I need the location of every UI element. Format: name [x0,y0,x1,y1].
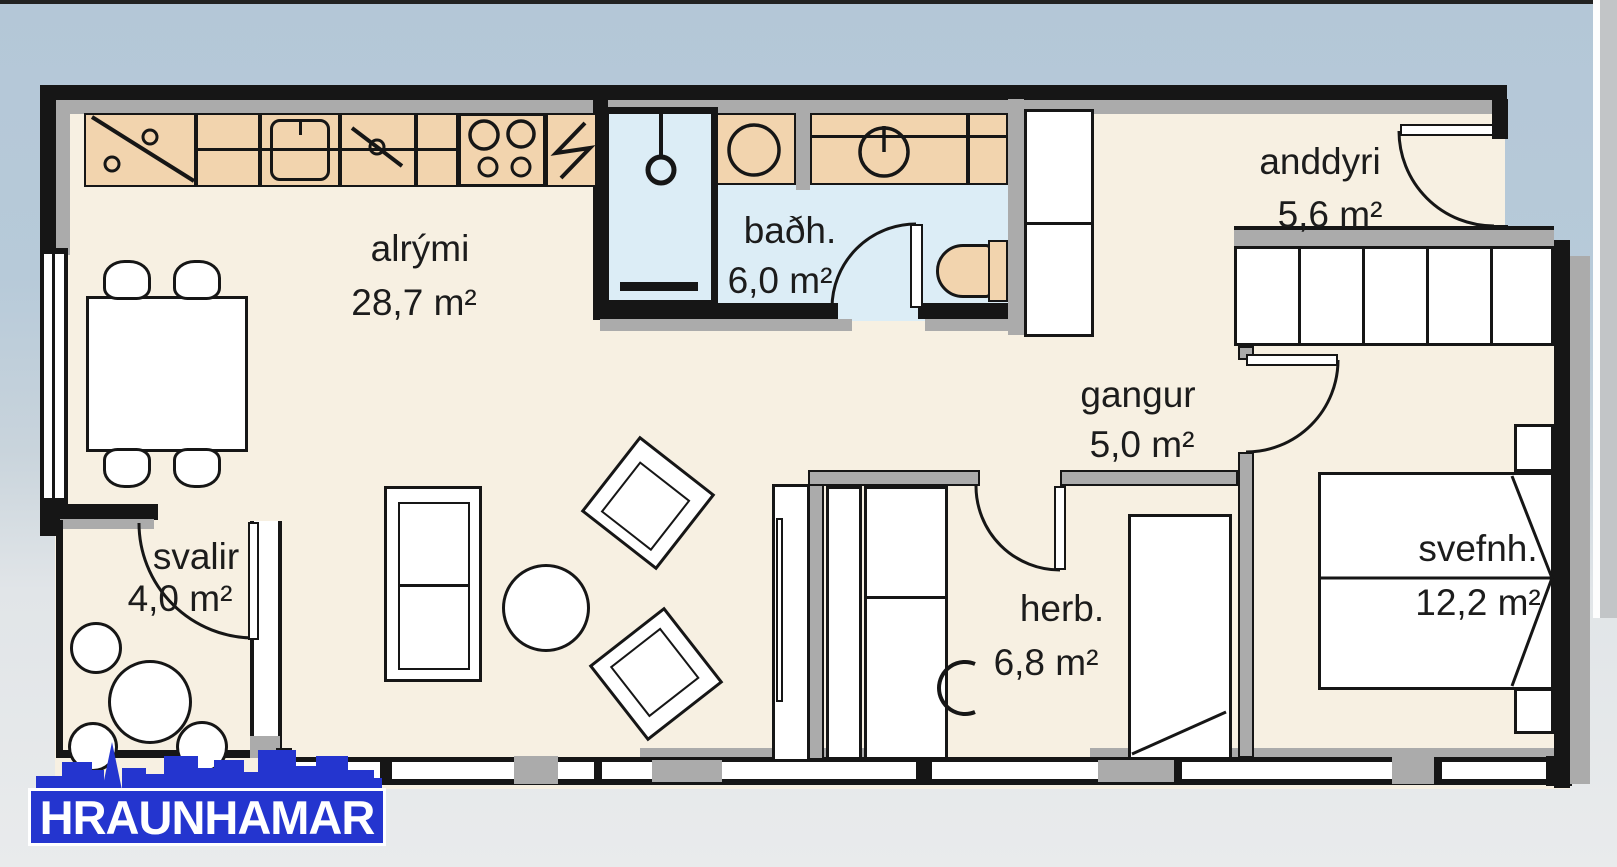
room-label-svalir: svalir [153,538,239,577]
dining-chair [103,260,151,300]
room-area-gangur: 5,0 m² [1090,426,1195,465]
wall-left-upper [40,85,56,255]
anddyri-wardrobe [1234,246,1554,346]
dining-chair [173,260,221,300]
floor-plan: alrými 28,7 m² baðh. 6,0 m² anddyri 5,6 … [0,0,1617,867]
double-bed [1318,472,1554,690]
balcony-chair [70,622,122,674]
wall-herb-top [808,470,980,486]
wardrobe-divider [1362,246,1365,346]
window-mullion [1098,760,1180,782]
herb-wardrobe [826,486,862,760]
window-left-line [52,252,55,502]
window-left-line [64,252,68,502]
window-divider [1174,760,1182,784]
wall-right-outer [1570,256,1590,784]
right-edge-strip-gray [1600,0,1617,618]
wall-bath-bottom-right-outer [925,319,1015,331]
room-label-gangur: gangur [1080,376,1195,415]
wall-bath-bottom-right [918,303,1010,319]
door-leaf-balcony [248,522,259,640]
agency-logo: HRAUNHAMAR [26,740,392,850]
shower-threshold [620,282,698,291]
window-left-cap [40,248,68,254]
logo-skyline [164,756,198,790]
door-leaf-entrance [1400,124,1494,136]
balcony-top-wall [56,504,158,520]
wall-bath-right [1008,99,1024,335]
window-left-line [40,252,44,502]
wall-top [55,85,1507,100]
nightstand [1514,424,1554,472]
balcony-right-rail-line [278,521,282,751]
balcony-table [108,660,192,744]
logo-church-spire [102,742,122,790]
wall-svefnh [1238,452,1254,758]
sofa-cushion-split [400,584,468,587]
room-area-herb: 6,8 m² [994,644,1099,683]
logo-text: HRAUNHAMAR [40,790,375,845]
door-leaf-herb [1054,486,1066,570]
window-mullion [514,756,558,784]
sink-notch [299,119,302,135]
wall-left-inner [56,100,70,255]
washing-machine [810,113,968,185]
room-label-anddyri: anddyri [1259,143,1380,182]
single-bed [1128,514,1232,760]
dining-chair [103,448,151,488]
wall-anddyri-right [1492,99,1508,139]
logo-skyline [296,766,316,790]
logo-skyline [198,768,214,790]
hall-closet-divider [1024,222,1094,225]
logo-skyline [348,770,374,790]
wardrobe-divider [1298,246,1301,346]
counter-edge-line [196,148,458,151]
window-divider [916,757,932,784]
wall-top-inner [68,100,1498,114]
logo-skyline [122,768,146,790]
kitchen-cooktop [458,113,546,187]
herb-wardrobe-split [866,596,946,599]
wardrobe-divider [1426,246,1429,346]
tall-cabinet-handle [776,518,783,702]
top-border-line [0,0,1617,4]
coffee-table [502,564,590,652]
wardrobe-divider [1490,246,1493,346]
room-label-badh: baðh. [744,212,837,251]
window-divider [594,760,602,784]
kitchen-appliance-unit [546,113,597,187]
wall-herb-left [808,470,824,760]
kitchen-corner-cabinet [84,113,196,187]
wall-herb-top-right [1060,470,1238,486]
nightstand [1514,688,1554,734]
herb-wardrobe [864,486,948,760]
logo-skyline [258,750,296,790]
bath-sink-counter [716,113,796,185]
room-label-herb: herb. [1020,590,1104,629]
room-label-svefnh: svefnh. [1418,530,1537,569]
room-area-svefnh: 12,2 m² [1415,584,1540,623]
dining-table [86,296,248,452]
toilet-tank [988,240,1008,302]
shower [602,107,718,307]
door-leaf-bathroom [910,224,923,308]
logo-skyline [62,762,92,790]
bath-counter [968,113,1008,185]
bath-counter-divider [796,113,810,190]
logo-skyline [214,760,244,790]
balcony-left-rail [56,520,63,756]
dining-chair [173,448,221,488]
washer-front-line [810,135,1008,138]
wall-bath-bottom-outer [600,319,852,331]
room-label-alrymi: alrými [371,230,470,269]
toilet [936,244,992,298]
window-divider [1434,760,1442,784]
room-area-alrymi: 28,7 m² [351,284,476,323]
window-mullion [652,760,722,782]
logo-skyline [316,756,348,790]
wall-right [1554,248,1570,788]
room-area-anddyri: 5,6 m² [1278,196,1383,235]
door-leaf-svefnh [1246,354,1338,366]
window-mullion [1392,754,1434,784]
balcony-top-wall-inner [60,519,154,529]
logo-bar: HRAUNHAMAR [28,788,386,846]
room-area-svalir: 4,0 m² [128,580,233,619]
right-edge-strip [1593,0,1600,618]
room-area-badh: 6,0 m² [728,262,833,301]
